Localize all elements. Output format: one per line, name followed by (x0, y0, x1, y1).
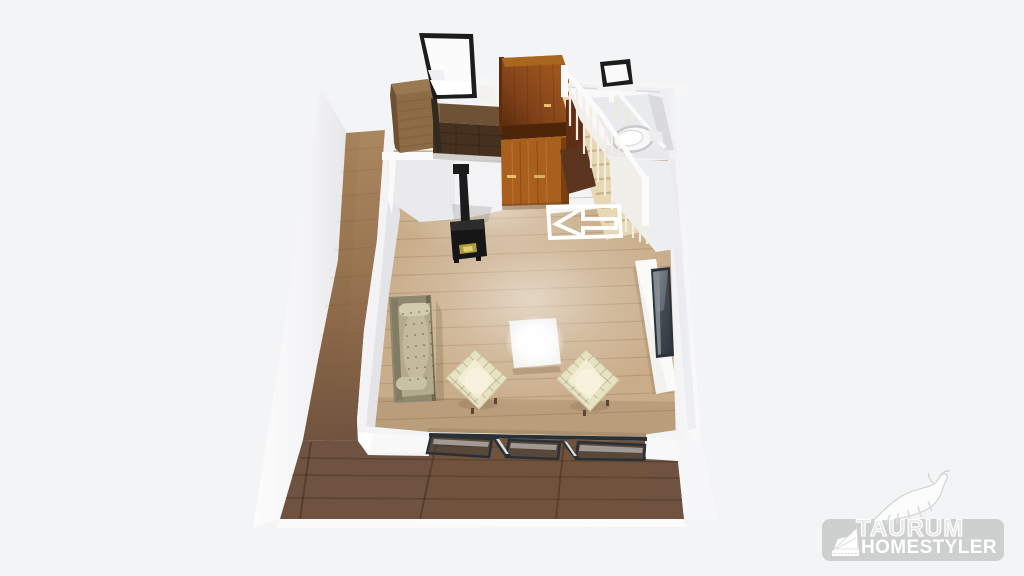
svg-text:HOMESTYLER: HOMESTYLER (861, 537, 997, 558)
